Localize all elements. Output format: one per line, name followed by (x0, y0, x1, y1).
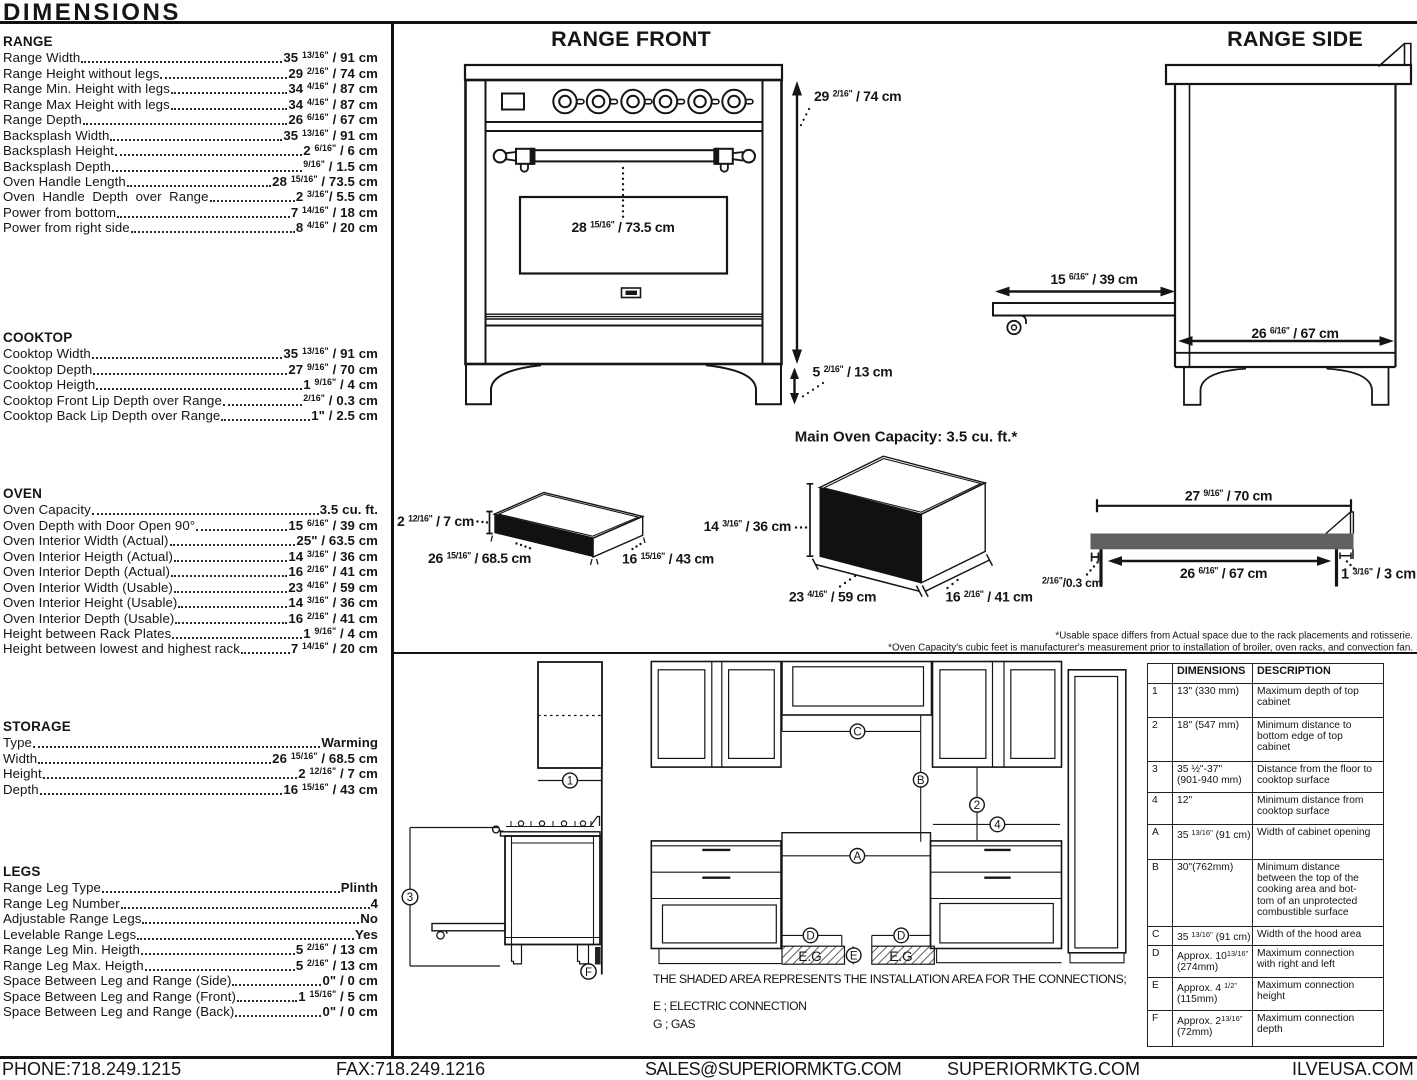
svg-text:*Oven Capacity's cubic feet is: *Oven Capacity's cubic feet is manufactu… (888, 643, 1413, 654)
svg-text:3: 3 (407, 892, 413, 904)
svg-text:29 2/16" / 74 cm: 29 2/16" / 74 cm (814, 88, 901, 104)
svg-text:1 3/16" / 3 cm: 1 3/16" / 3 cm (1341, 566, 1416, 582)
svg-text:2 12/16" / 7 cm: 2 12/16" / 7 cm (397, 513, 474, 529)
svg-text:4: 4 (994, 820, 1001, 832)
svg-text:Main Oven Capacity: 3.5 cu. ft: Main Oven Capacity: 3.5 cu. ft.* (795, 429, 1018, 446)
svg-text:F: F (585, 967, 592, 979)
svg-text:A: A (853, 851, 861, 863)
svg-text:23 4/16" / 59 cm: 23 4/16" / 59 cm (789, 589, 876, 605)
svg-text:26 15/16" / 68.5 cm: 26 15/16" / 68.5 cm (428, 550, 531, 566)
svg-text:16 2/16" / 41 cm: 16 2/16" / 41 cm (945, 589, 1032, 605)
svg-text:D: D (897, 931, 905, 943)
svg-text:D: D (806, 931, 814, 943)
svg-text:2/16"/0.3 cm: 2/16"/0.3 cm (1042, 576, 1102, 590)
svg-text:26 6/16" / 67 cm: 26 6/16" / 67 cm (1251, 325, 1338, 341)
svg-text:16 15/16" / 43 cm: 16 15/16" / 43 cm (622, 551, 714, 567)
svg-text:E: E (850, 950, 858, 962)
svg-text:5 2/16" / 13 cm: 5 2/16" / 13 cm (813, 364, 893, 380)
svg-text:*Usable space differs from Act: *Usable space differs from Actual space … (1055, 631, 1413, 642)
svg-text:1: 1 (567, 776, 573, 788)
svg-text:15 6/16" / 39 cm: 15 6/16" / 39 cm (1050, 271, 1137, 287)
svg-text:E.G: E.G (798, 949, 821, 964)
svg-text:28 15/16" / 73.5 cm: 28 15/16" / 73.5 cm (572, 219, 675, 235)
svg-text:E.G: E.G (889, 949, 912, 964)
svg-text:26 6/16" / 67 cm: 26 6/16" / 67 cm (1180, 565, 1267, 581)
svg-text:2: 2 (974, 800, 980, 812)
svg-text:14 3/16" / 36 cm: 14 3/16" / 36 cm (704, 518, 791, 534)
svg-text:C: C (853, 727, 861, 739)
svg-text:B: B (917, 775, 925, 787)
svg-text:27 9/16" / 70 cm: 27 9/16" / 70 cm (1185, 488, 1272, 504)
